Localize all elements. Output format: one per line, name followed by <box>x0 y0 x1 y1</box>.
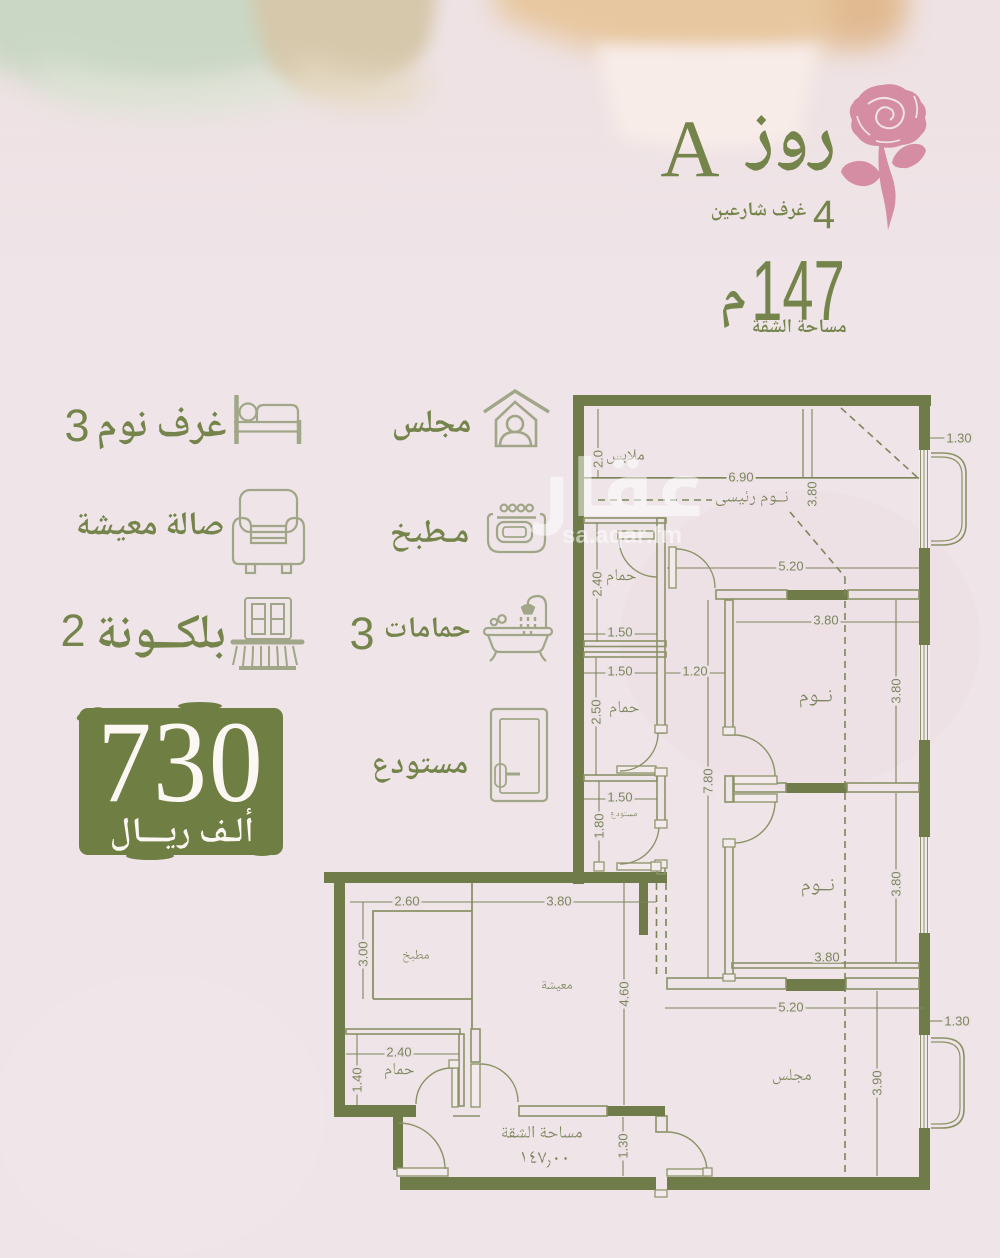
svg-text:5.20: 5.20 <box>778 558 803 573</box>
svg-text:3.80: 3.80 <box>546 893 571 908</box>
svg-text:730: 730 <box>98 698 265 827</box>
svg-text:2.40: 2.40 <box>589 571 604 596</box>
svg-text:3.80: 3.80 <box>813 612 838 627</box>
svg-text:2.40: 2.40 <box>386 1044 411 1059</box>
svg-text:147: 147 <box>751 244 845 338</box>
svg-text:1.40: 1.40 <box>349 1067 364 1092</box>
svg-text:3: 3 <box>64 400 89 451</box>
svg-text:1.30: 1.30 <box>946 430 971 445</box>
svg-text:1.30: 1.30 <box>944 1013 969 1028</box>
svg-text:1.50: 1.50 <box>607 624 632 639</box>
svg-text:3.80: 3.80 <box>804 481 819 506</box>
svg-text:1.20: 1.20 <box>682 663 707 678</box>
svg-text:A: A <box>660 103 719 194</box>
svg-text:5.20: 5.20 <box>778 999 803 1014</box>
svg-text:3.00: 3.00 <box>355 941 370 966</box>
svg-text:3.80: 3.80 <box>888 678 903 703</box>
svg-text:3.90: 3.90 <box>869 1070 884 1095</box>
svg-text:6.90: 6.90 <box>728 469 753 484</box>
svg-text:2.60: 2.60 <box>394 893 419 908</box>
svg-text:2.0: 2.0 <box>590 450 605 468</box>
svg-text:1.50: 1.50 <box>607 663 632 678</box>
svg-text:3: 3 <box>349 608 374 659</box>
svg-text:2: 2 <box>60 605 85 656</box>
svg-text:4.60: 4.60 <box>616 981 631 1006</box>
svg-text:2.50: 2.50 <box>588 699 603 724</box>
svg-text:1.50: 1.50 <box>607 789 632 804</box>
svg-text:1.80: 1.80 <box>591 813 606 838</box>
svg-text:1.30: 1.30 <box>615 1133 630 1158</box>
svg-text:3.80: 3.80 <box>814 949 839 964</box>
svg-text:4: 4 <box>813 193 835 237</box>
svg-text:3.80: 3.80 <box>888 871 903 896</box>
svg-text:sa.aqar.fm: sa.aqar.fm <box>562 522 682 549</box>
svg-text:7.80: 7.80 <box>700 768 715 793</box>
